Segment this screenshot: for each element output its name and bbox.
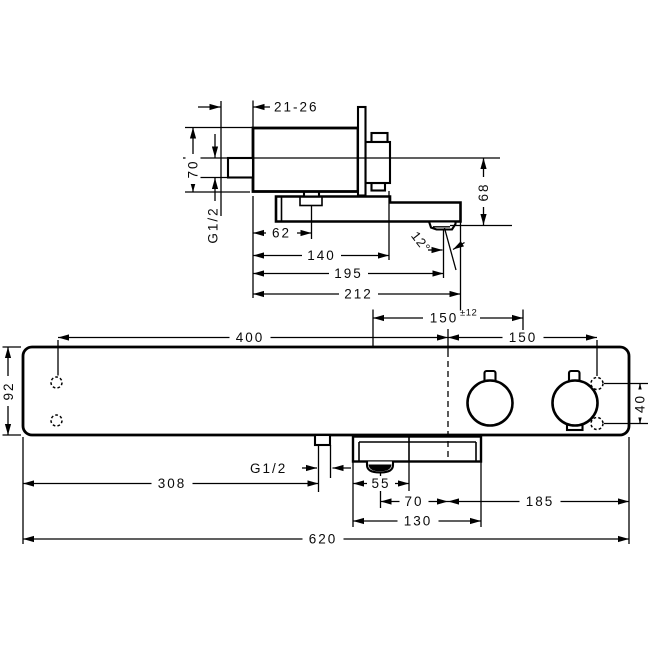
dim-130-label: 130 [404, 514, 433, 529]
dim-holes-to-center: 400 [58, 330, 448, 345]
right-handle [553, 381, 598, 426]
front-view: 150 ±12 400 150 92 40 [1, 308, 648, 547]
dim-62-label: 62 [272, 226, 291, 241]
dim-55: 55 [353, 476, 409, 491]
dim-55-label: 55 [371, 476, 390, 491]
dim-body-height-label: 70 [186, 159, 201, 178]
dim-inlet-thread: G1/2 [206, 134, 221, 244]
dim-supply-spacing: 150 ±12 [373, 308, 523, 326]
dim-185: 185 [448, 494, 629, 509]
front-view-outline [23, 347, 629, 473]
dim-outlet-angle-label: 12° [408, 228, 434, 255]
dim-hose-thread: G1/2 [250, 461, 351, 476]
dim-inlet-thread-label: G1/2 [206, 206, 221, 243]
handle-side [366, 142, 391, 183]
dim-plate-height: 92 [1, 347, 16, 435]
dim-195-label: 195 [334, 266, 363, 281]
spout-side [276, 197, 461, 222]
handle-bottom-tab-side [372, 183, 386, 191]
mounting-hole-left-top [51, 377, 62, 388]
dim-total-width-label: 620 [309, 532, 338, 547]
dim-hole-spacing-label: 40 [633, 394, 648, 413]
mounting-hole-right-top [591, 378, 603, 390]
handle-top-tab-side [372, 133, 388, 142]
technical-drawing: 21-26 70 G1/2 62 140 [0, 0, 650, 650]
dim-195: 195 [253, 266, 444, 281]
dim-supply-spacing-label: 150 [430, 311, 459, 326]
dim-70-label: 70 [404, 494, 423, 509]
dim-70: 70 [381, 494, 449, 509]
dim-185-label: 185 [526, 494, 555, 509]
hose-outlet-port [315, 435, 330, 445]
side-view: 21-26 70 G1/2 62 140 [183, 100, 512, 314]
dim-center-to-holes: 150 [448, 330, 597, 345]
wall-union-side [228, 158, 253, 178]
dim-308: 308 [23, 476, 319, 491]
dim-outlet-drop: 68 [476, 158, 491, 225]
mounting-hole-right-bottom [591, 418, 603, 430]
left-handle [468, 381, 513, 426]
valve-body-side [253, 128, 358, 192]
dim-308-label: 308 [158, 476, 187, 491]
dim-supply-tolerance-label: ±12 [460, 308, 477, 319]
dim-body-height: 70 [186, 128, 201, 193]
mounting-hole-left-bottom [51, 415, 62, 426]
dim-wall-clearance: 21-26 [198, 100, 319, 115]
dim-62: 62 [253, 226, 312, 241]
dim-total-width: 620 [23, 532, 629, 547]
dim-140: 140 [253, 248, 389, 263]
dim-plate-height-label: 92 [1, 381, 16, 400]
dim-wall-clearance-label: 21-26 [274, 100, 319, 115]
base-plate [23, 347, 629, 435]
dim-hose-thread-label: G1/2 [250, 461, 287, 476]
outlet-box [353, 437, 481, 462]
side-view-outline [228, 107, 461, 230]
dim-130: 130 [353, 514, 481, 529]
dim-outlet-angle: 12° [408, 228, 464, 255]
mounting-plate-side [358, 107, 366, 196]
dim-center-to-holes-label: 150 [509, 330, 538, 345]
dim-140-label: 140 [307, 248, 336, 263]
dim-outlet-drop-label: 68 [476, 182, 491, 201]
dim-holes-to-center-label: 400 [236, 330, 265, 345]
dim-hole-spacing: 40 [633, 384, 648, 424]
technical-drawing-page: 21-26 70 G1/2 62 140 [0, 0, 650, 650]
dim-212-label: 212 [344, 287, 373, 302]
dim-212: 212 [253, 287, 461, 302]
